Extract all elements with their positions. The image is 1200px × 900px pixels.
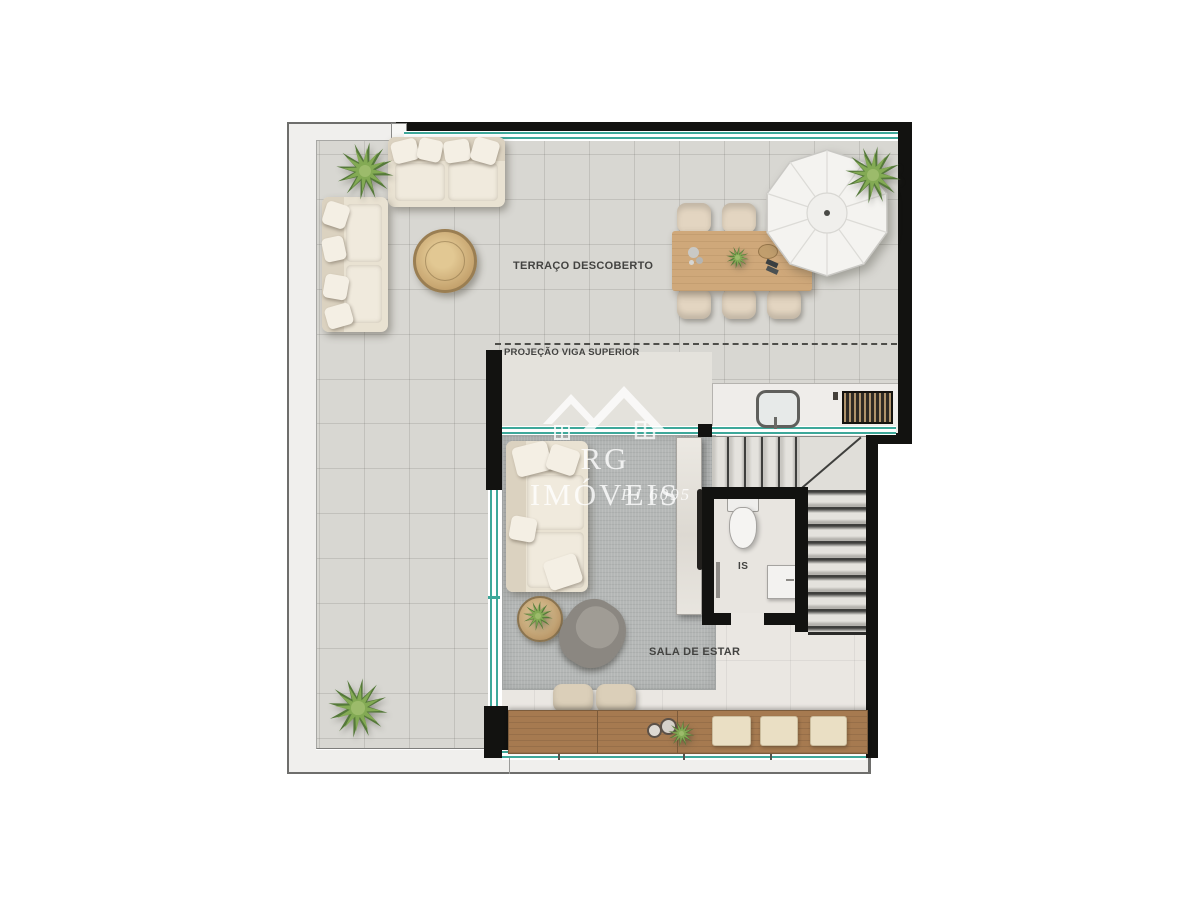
watermark-house-icon (543, 386, 667, 444)
bathroom-wall-right (795, 487, 808, 632)
sofa-seat-cushion (346, 204, 382, 262)
towel-rail-icon (716, 562, 720, 598)
terrace-plant-bottom-icon (328, 678, 388, 738)
wall-pillar-left (486, 350, 502, 490)
grill-icon (842, 391, 893, 424)
coffee-table-plant-icon (523, 601, 553, 631)
stair-treads-horizontal (712, 437, 800, 491)
sofa-pillow (442, 138, 471, 164)
frame-outline-top (287, 122, 403, 124)
sofa-seat-cushion (395, 163, 445, 201)
bar-seat-cushion (760, 716, 798, 746)
glass-divider-left (488, 596, 500, 599)
grill-tap-icon (833, 392, 838, 400)
frame-outline-left (287, 122, 289, 774)
bathroom-label: IS (738, 561, 748, 572)
beam-projection-label: PROJEÇÃO VIGA SUPERIOR (504, 347, 640, 358)
band-joint-line (509, 758, 510, 774)
umbrella-plant-icon (845, 146, 901, 204)
bar-plant-icon (668, 720, 695, 747)
dining-chair (677, 203, 711, 233)
bar-seat-cushion (712, 716, 751, 746)
sofa-pillow (416, 137, 444, 164)
parapet-top (289, 124, 401, 140)
parapet-left (289, 124, 316, 772)
staircase-lower-run (808, 490, 866, 635)
terrace-label: TERRAÇO DESCOBERTO (513, 260, 653, 272)
terrace-sofa-horizontal (388, 137, 505, 207)
counter-sink-icon (756, 390, 800, 428)
dining-chair (722, 203, 756, 233)
wall-top (396, 122, 912, 131)
table-plant-icon (726, 246, 749, 269)
sofa-pillow (508, 515, 538, 543)
dining-chair (722, 289, 756, 319)
frame-outline-bottom (287, 772, 871, 774)
sink-tap-icon (786, 579, 794, 581)
staircase-upper-run (712, 436, 866, 491)
bar-plank-joint (597, 711, 598, 753)
bathroom-wall-top (702, 487, 808, 499)
bar-chair (596, 684, 636, 712)
bathroom-wall-bottom-right (764, 613, 808, 625)
terrace-plant-icon (336, 142, 394, 200)
watermark-registry: PJ 6095 (621, 485, 691, 505)
stair-landing (800, 437, 866, 491)
sofa-pillow (321, 235, 348, 263)
watermark: RG IMÓVEIS PJ 6095 (503, 383, 707, 513)
frame-outline-bottom-right (868, 756, 871, 774)
sofa-pillow (322, 273, 350, 301)
sink-faucet-icon (774, 417, 777, 429)
tableware-icon (688, 247, 699, 258)
round-side-table (413, 229, 477, 293)
beam-projection-line (495, 343, 897, 345)
sofa-seat-cushion (448, 163, 498, 201)
terrace-sofa-vertical (322, 197, 388, 332)
bar-chair (553, 684, 593, 712)
dining-chair (677, 289, 711, 319)
table-texture (425, 241, 465, 281)
toilet-icon (729, 507, 757, 549)
living-room-label: SALA DE ESTAR (649, 646, 740, 658)
bathroom-wall-bottom-left (702, 613, 731, 625)
floor-plan-image: PROJEÇÃO VIGA SUPERIOR (0, 0, 1200, 900)
dining-chair (767, 289, 801, 319)
bar-seat-cushion (810, 716, 847, 746)
